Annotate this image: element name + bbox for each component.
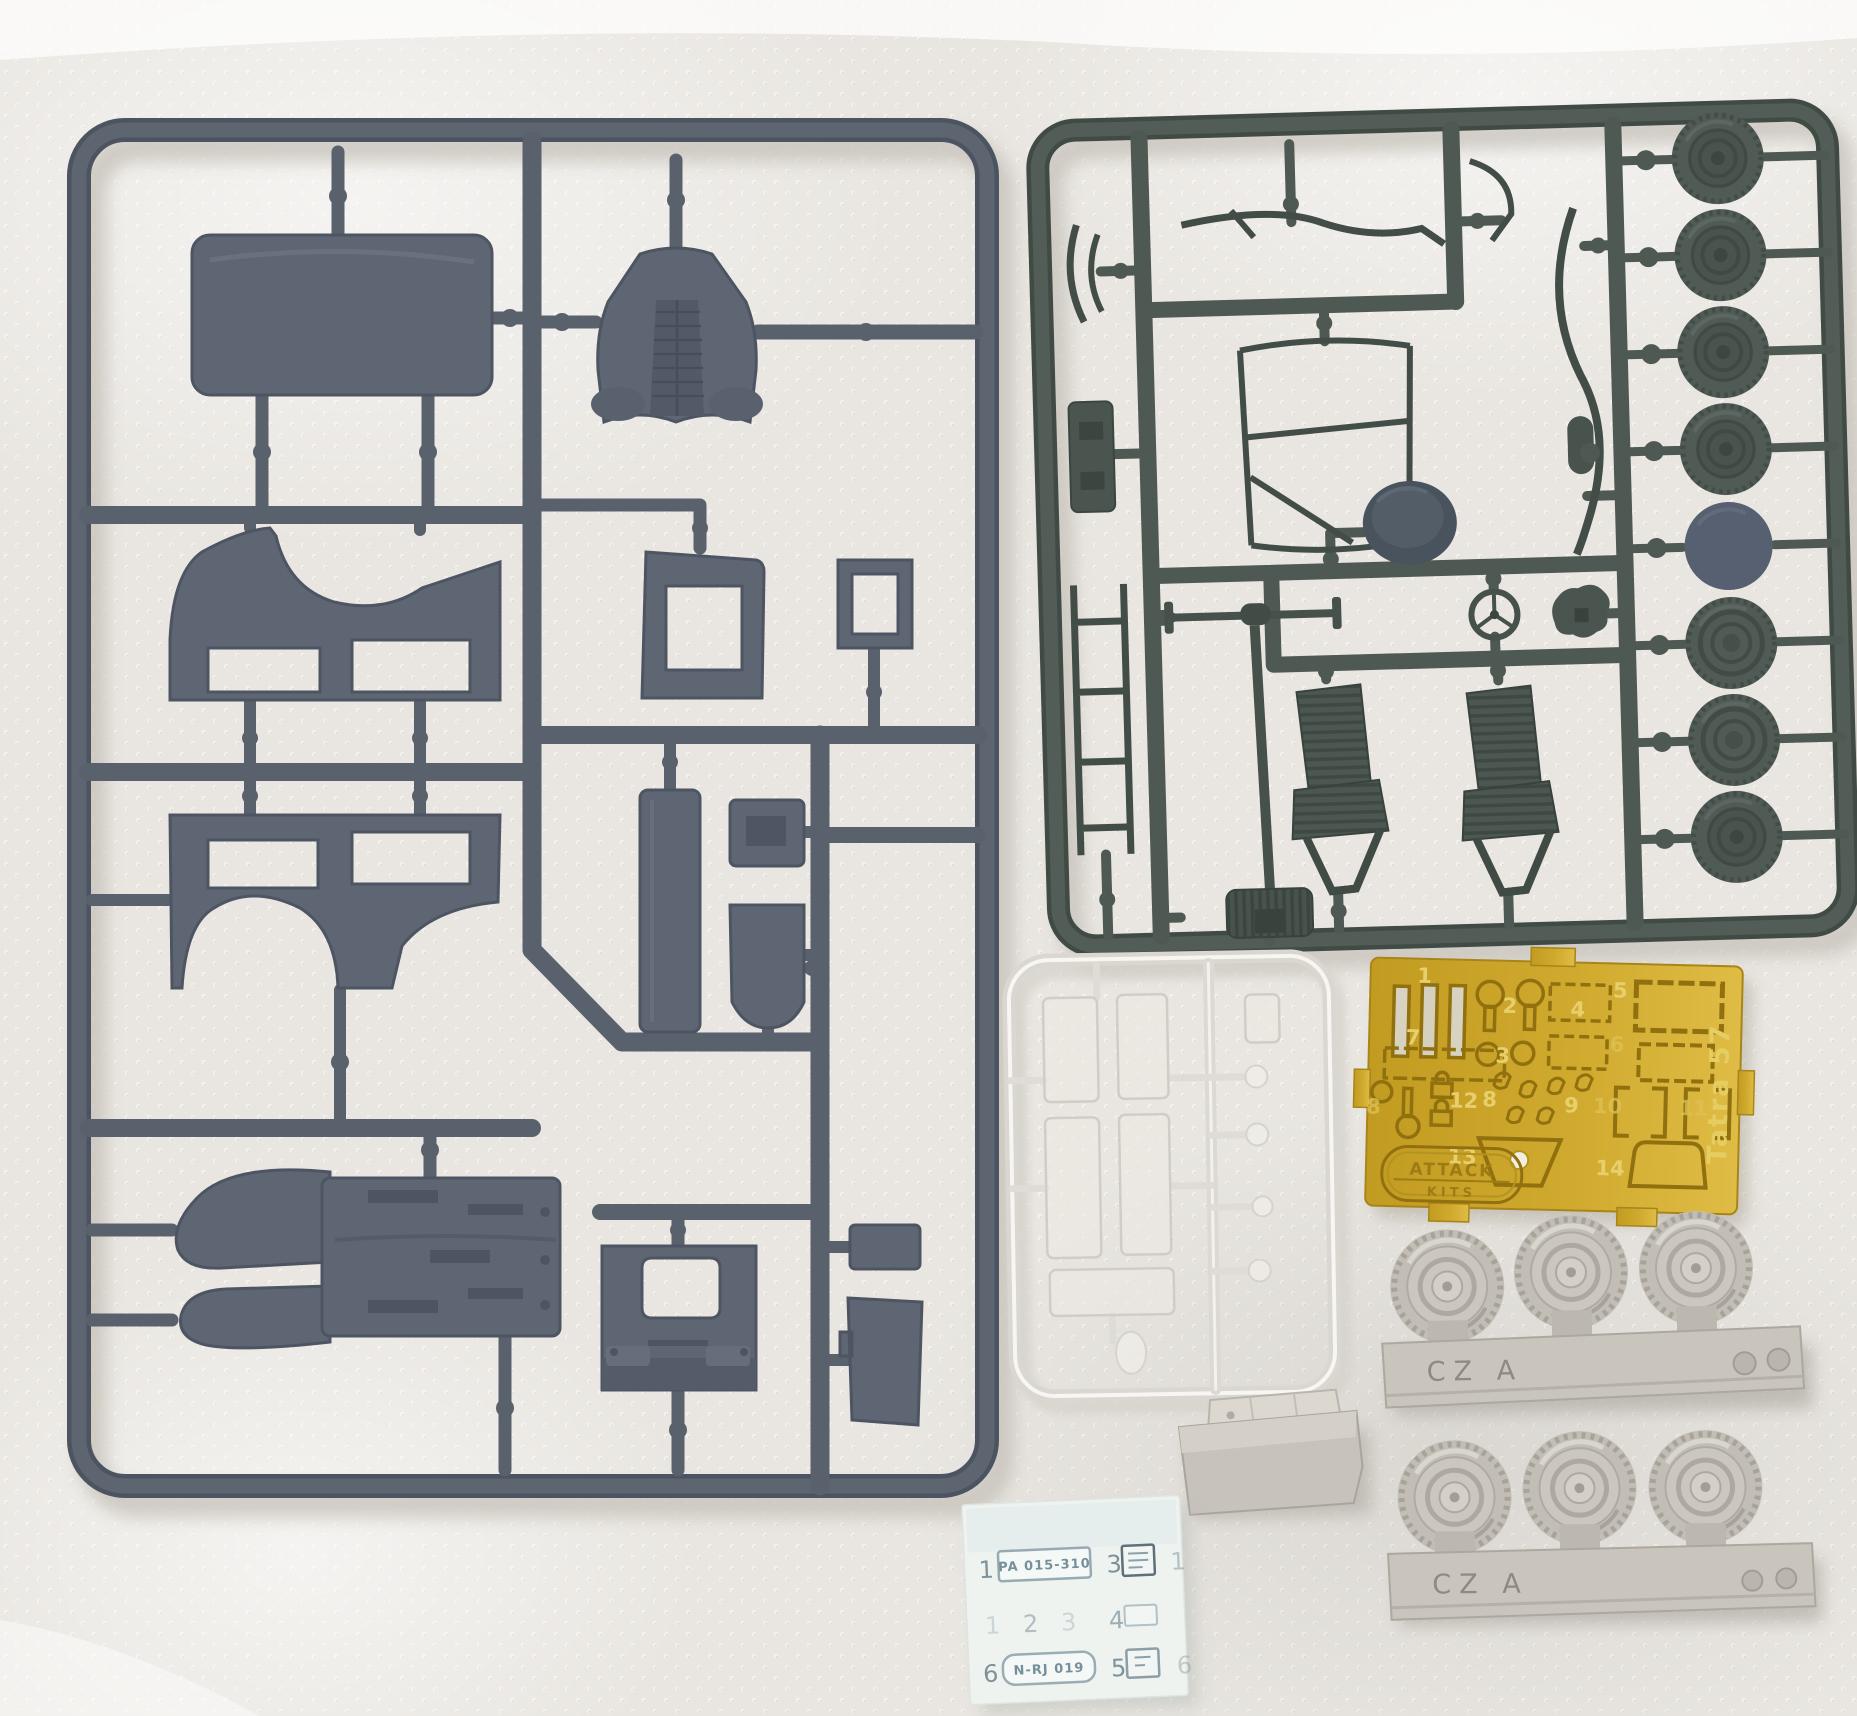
pe-number: 10 xyxy=(1593,1094,1623,1119)
casting-dot xyxy=(1733,1352,1755,1374)
lens-part xyxy=(1246,1123,1268,1145)
chassis-pan-part xyxy=(176,1170,560,1348)
casting-dot xyxy=(1742,1571,1762,1591)
rear-valance-part xyxy=(730,905,804,1028)
small-plate-part xyxy=(850,1225,920,1269)
lens-part xyxy=(1252,1196,1272,1216)
running-board-part xyxy=(640,790,700,1032)
model-kit-photo: 1 2 3 4 5 6 7 8 8 9 10 11 12 13 14 ATTAC… xyxy=(0,0,1857,1716)
fret-side-label: Tatra 57 xyxy=(1702,1023,1736,1164)
pe-number: 7 xyxy=(1406,1025,1421,1049)
scene-canvas: 1 2 3 4 5 6 7 8 8 9 10 11 12 13 14 ATTAC… xyxy=(0,0,1857,1716)
casting-dot xyxy=(1776,1568,1796,1588)
hinge-plate-part xyxy=(1068,401,1115,512)
decal-number: 4 xyxy=(1108,1606,1124,1635)
pe-number: 12 xyxy=(1449,1088,1479,1113)
pe-number: 5 xyxy=(1613,978,1628,1002)
pe-strips xyxy=(1393,984,1466,1058)
decal-edge-ghost: 6 xyxy=(1176,1651,1192,1680)
headlight-lens-part xyxy=(1116,1331,1147,1374)
flat-panel-part xyxy=(840,1298,922,1425)
lens-part xyxy=(1248,1259,1270,1281)
lens-part xyxy=(1245,1065,1267,1087)
pe-number: 2 xyxy=(1502,994,1517,1018)
small-decal-3 xyxy=(1122,1545,1155,1576)
small-decal-5 xyxy=(1126,1648,1159,1677)
window-pane-part xyxy=(1117,994,1169,1099)
pe-number: 1 xyxy=(1417,964,1432,988)
pe-number: 3 xyxy=(1495,1044,1510,1068)
decal-number: 1 xyxy=(978,1556,994,1585)
decal-edge-ghost: 1 xyxy=(1170,1547,1186,1576)
resin-marking: CZ A xyxy=(1432,1569,1529,1601)
pe-number: 14 xyxy=(1595,1156,1625,1181)
casting-dot xyxy=(1767,1349,1789,1371)
window-pane-part xyxy=(1119,1114,1171,1255)
pe-number: 9 xyxy=(1564,1093,1579,1117)
decal-number-faint: 3 xyxy=(1060,1608,1076,1637)
small-decal-4 xyxy=(1124,1605,1157,1626)
brand-name: ATTACK xyxy=(1409,1159,1494,1181)
pe-number: 6 xyxy=(1609,1032,1624,1056)
pe-number: 4 xyxy=(1570,997,1585,1021)
plate-text: N-RJ 019 xyxy=(1013,1661,1084,1679)
decal-number: 2 xyxy=(1022,1610,1038,1639)
brand-sub: KITS xyxy=(1427,1185,1477,1201)
decal-number: 3 xyxy=(1106,1550,1122,1579)
resin-marking: CZ A xyxy=(1426,1355,1523,1388)
window-pane-part xyxy=(1043,997,1099,1102)
windshield-pane-part xyxy=(1050,1268,1175,1316)
decal-number: 6 xyxy=(983,1659,999,1688)
decal-number: 5 xyxy=(1110,1654,1126,1683)
window-pane-part xyxy=(1045,1117,1101,1258)
pe-number: 8 xyxy=(1366,1094,1381,1118)
decal-number-faint: 1 xyxy=(984,1611,1000,1640)
small-pane-part xyxy=(1245,994,1280,1043)
pe-number: 8 xyxy=(1482,1087,1497,1111)
photo-etch-fret: 1 2 3 4 5 6 7 8 8 9 10 11 12 13 14 ATTAC… xyxy=(1351,943,1758,1229)
small-bracket-part xyxy=(730,800,804,866)
decal-sheet: 1 PA 015-310 3 1 2 3 4 6 N-RJ 019 5 1 6 xyxy=(962,1495,1199,1716)
